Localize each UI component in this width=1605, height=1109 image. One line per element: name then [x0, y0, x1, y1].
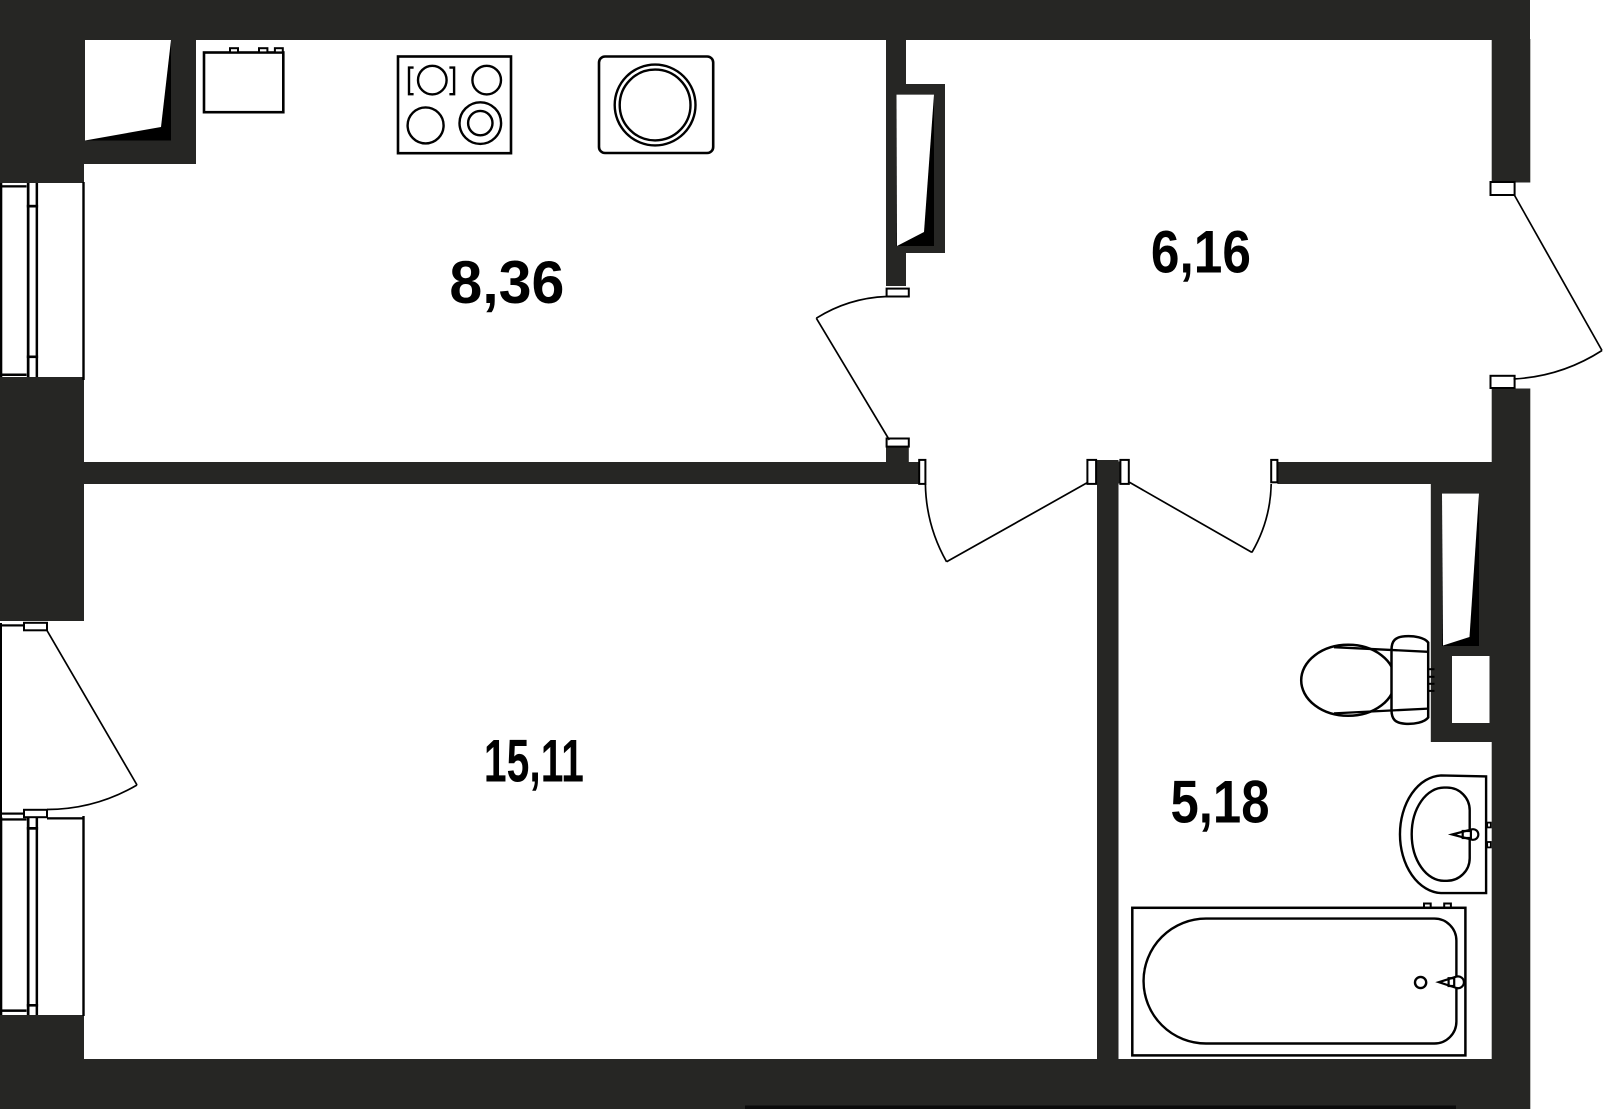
svg-text:8,36: 8,36 — [449, 249, 564, 316]
svg-text:5,18: 5,18 — [1171, 769, 1270, 836]
svg-text:15,11: 15,11 — [484, 728, 584, 795]
svg-text:6,16: 6,16 — [1151, 219, 1251, 286]
